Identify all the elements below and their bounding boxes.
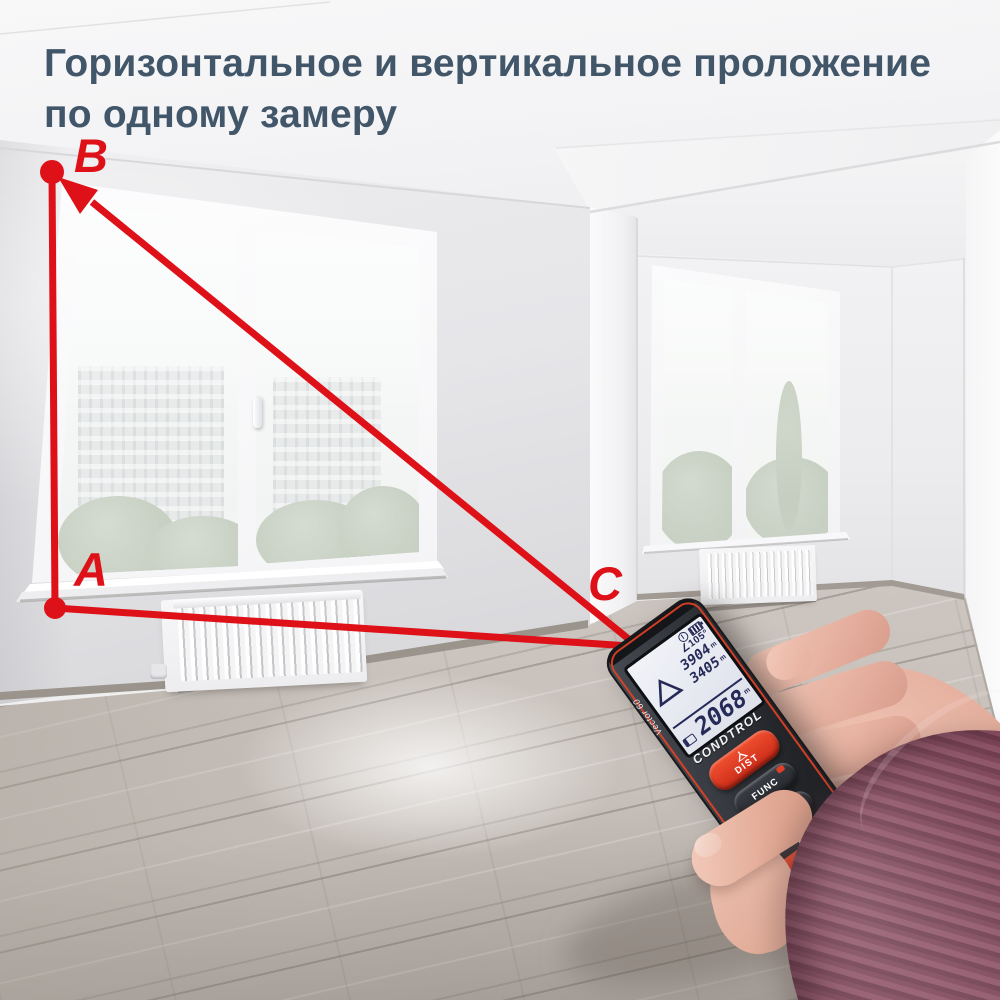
product-marketing-image: B A C Vector 60 ∠105° 3904m 3405m 2068m [0,0,1000,1000]
point-b-dot [40,160,64,184]
page-title: Горизонтальное и вертикальное проложение… [44,38,956,141]
unit-label: m [709,640,718,649]
title-line-1: Горизонтальное и вертикальное проложение [44,38,956,89]
title-line-2: по одному замеру [44,89,956,140]
point-label-c: C [588,560,622,607]
camera-indicator-icon [776,764,786,774]
point-a-dot [44,597,66,619]
point-label-a: A [74,546,108,593]
arrowhead [58,177,98,214]
unit-label: m [719,653,728,662]
triangle-mode-icon [645,671,687,714]
